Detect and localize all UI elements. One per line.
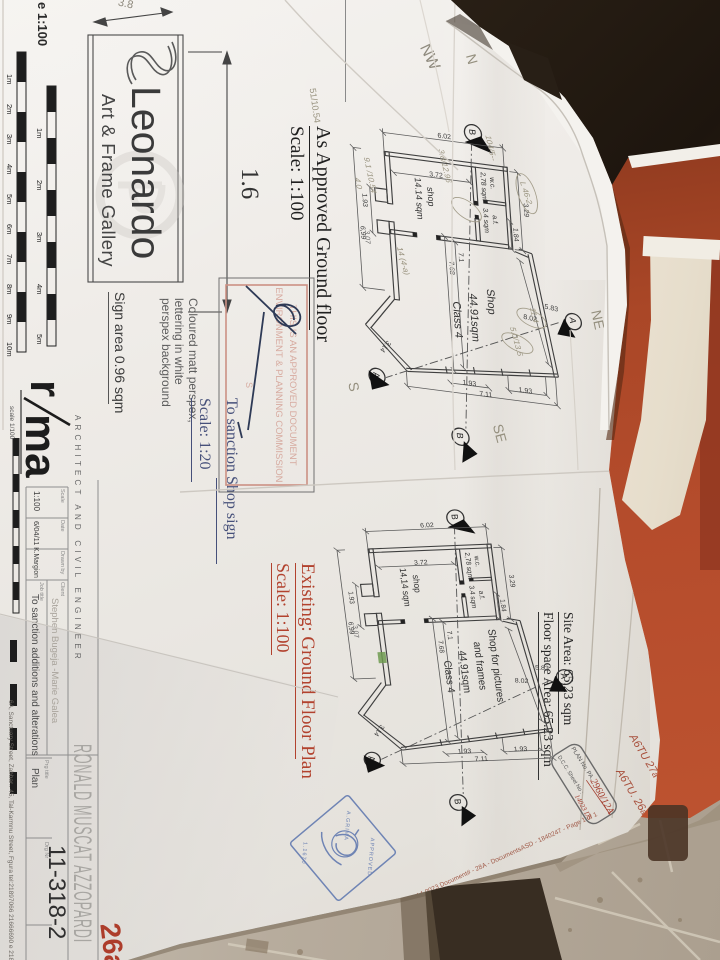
svg-text:1.1670: 1.1670	[300, 842, 308, 865]
svg-text:A.GRIMA: A.GRIMA	[342, 811, 351, 842]
svg-text:APPROVED: APPROVED	[366, 837, 375, 876]
